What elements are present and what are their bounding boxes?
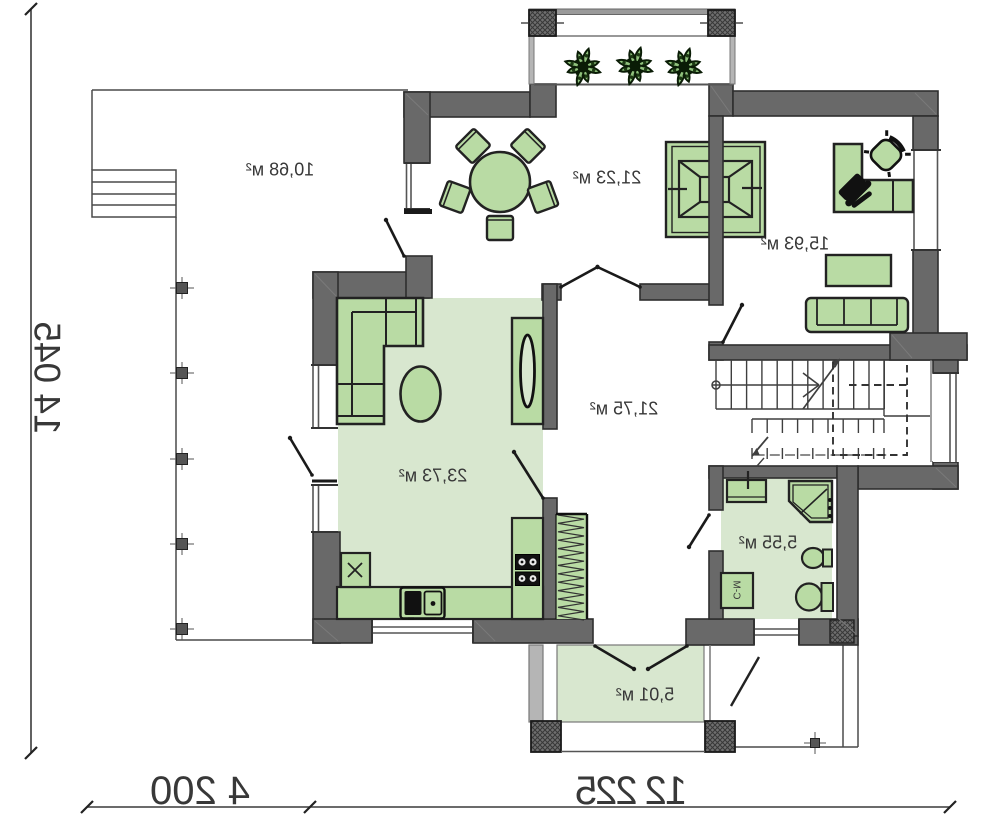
svg-text:23,73 м²: 23,73 м² bbox=[399, 466, 467, 486]
svg-text:14 045: 14 045 bbox=[27, 321, 68, 434]
svg-text:С-М: С-М bbox=[731, 581, 742, 600]
svg-text:21,23 м²: 21,23 м² bbox=[573, 168, 641, 188]
svg-text:4 200: 4 200 bbox=[150, 769, 250, 813]
svg-text:5,01 м²: 5,01 м² bbox=[616, 685, 674, 705]
svg-text:12 225: 12 225 bbox=[576, 769, 687, 813]
svg-text:5,55 м²: 5,55 м² bbox=[739, 533, 797, 553]
svg-text:10,68 м²: 10,68 м² bbox=[246, 160, 314, 180]
svg-text:15,93 м²: 15,93 м² bbox=[761, 234, 829, 254]
svg-text:21,75 м²: 21,75 м² bbox=[590, 399, 658, 419]
